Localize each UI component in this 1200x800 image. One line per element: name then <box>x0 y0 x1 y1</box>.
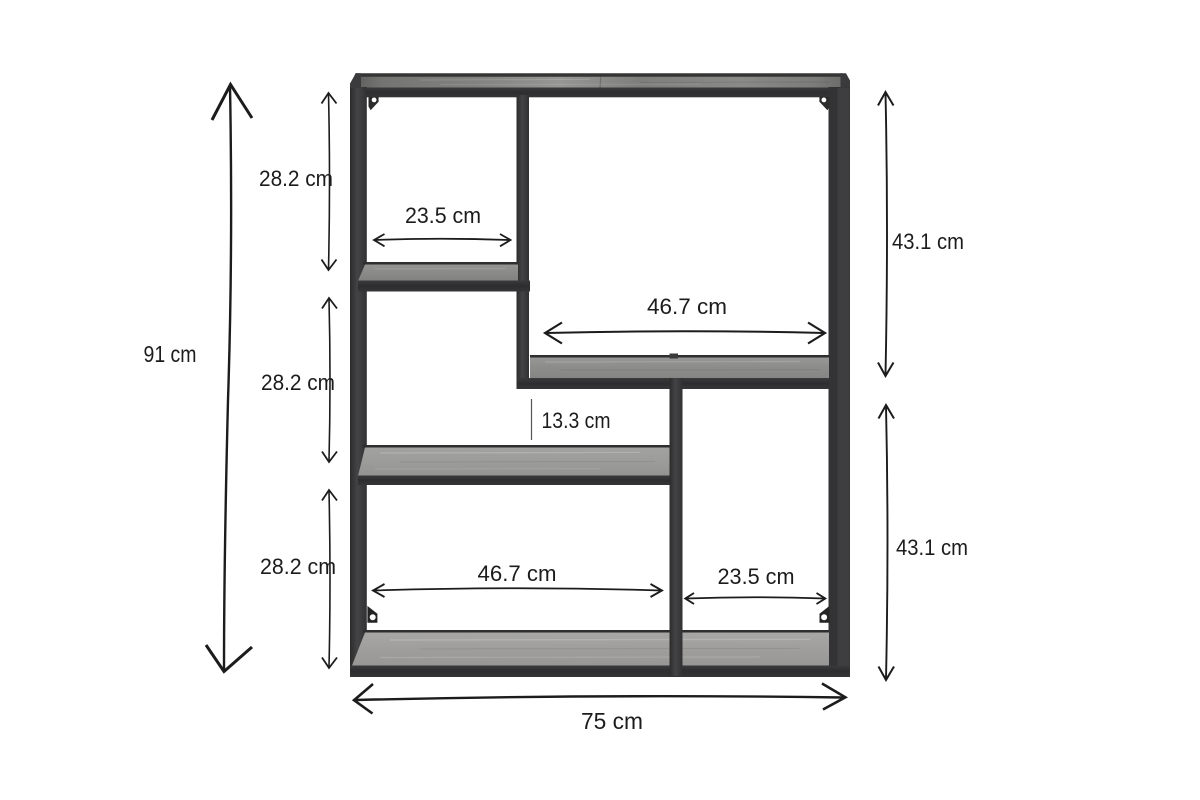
svg-text:28.2 cm: 28.2 cm <box>261 370 335 395</box>
svg-text:43.1 cm: 43.1 cm <box>896 535 968 560</box>
svg-text:28.2 cm: 28.2 cm <box>260 554 336 579</box>
svg-text:23.5 cm: 23.5 cm <box>405 203 481 228</box>
svg-text:46.7 cm: 46.7 cm <box>478 561 557 586</box>
svg-text:28.2 cm: 28.2 cm <box>259 166 333 191</box>
svg-text:43.1 cm: 43.1 cm <box>892 229 964 254</box>
svg-text:91 cm: 91 cm <box>144 341 197 367</box>
svg-text:13.3 cm: 13.3 cm <box>542 408 611 433</box>
svg-text:75 cm: 75 cm <box>581 708 643 734</box>
svg-text:23.5 cm: 23.5 cm <box>718 564 795 589</box>
svg-text:46.7 cm: 46.7 cm <box>647 294 727 319</box>
